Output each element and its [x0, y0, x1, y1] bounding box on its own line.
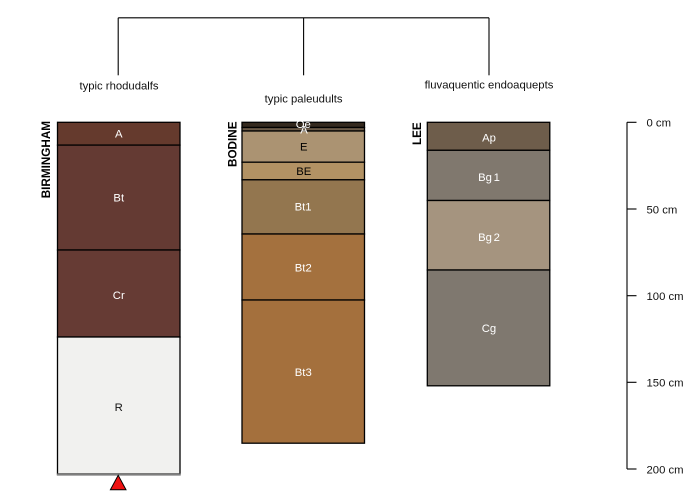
- svg-text:A: A: [300, 124, 308, 136]
- svg-text:E: E: [300, 142, 308, 154]
- svg-text:BODINE: BODINE: [226, 121, 239, 167]
- svg-text:Bg1: Bg1: [478, 172, 500, 184]
- svg-text:50 cm: 50 cm: [647, 204, 678, 216]
- svg-text:BE: BE: [296, 166, 312, 178]
- svg-text:Cr: Cr: [113, 290, 125, 302]
- svg-text:100 cm: 100 cm: [647, 291, 684, 303]
- svg-text:R: R: [115, 402, 123, 414]
- svg-text:Ap: Ap: [482, 133, 496, 145]
- svg-text:Bt3: Bt3: [295, 367, 312, 379]
- svg-text:Cg: Cg: [482, 323, 496, 335]
- svg-text:A: A: [115, 128, 123, 140]
- svg-text:200 cm: 200 cm: [647, 464, 684, 476]
- svg-text:fluvaquentic endoaquepts: fluvaquentic endoaquepts: [425, 79, 554, 91]
- svg-text:150 cm: 150 cm: [647, 378, 684, 390]
- svg-text:0 cm: 0 cm: [647, 118, 671, 130]
- svg-text:Bt: Bt: [113, 193, 125, 205]
- svg-text:Bt2: Bt2: [295, 262, 312, 274]
- svg-text:Bt1: Bt1: [295, 202, 312, 214]
- svg-text:typic paleudults: typic paleudults: [265, 94, 343, 106]
- svg-text:BIRMINGHAM: BIRMINGHAM: [40, 121, 53, 198]
- svg-text:typic rhodudalfs: typic rhodudalfs: [79, 81, 158, 93]
- svg-text:Bg2: Bg2: [478, 232, 500, 244]
- svg-text:LEE: LEE: [411, 122, 424, 145]
